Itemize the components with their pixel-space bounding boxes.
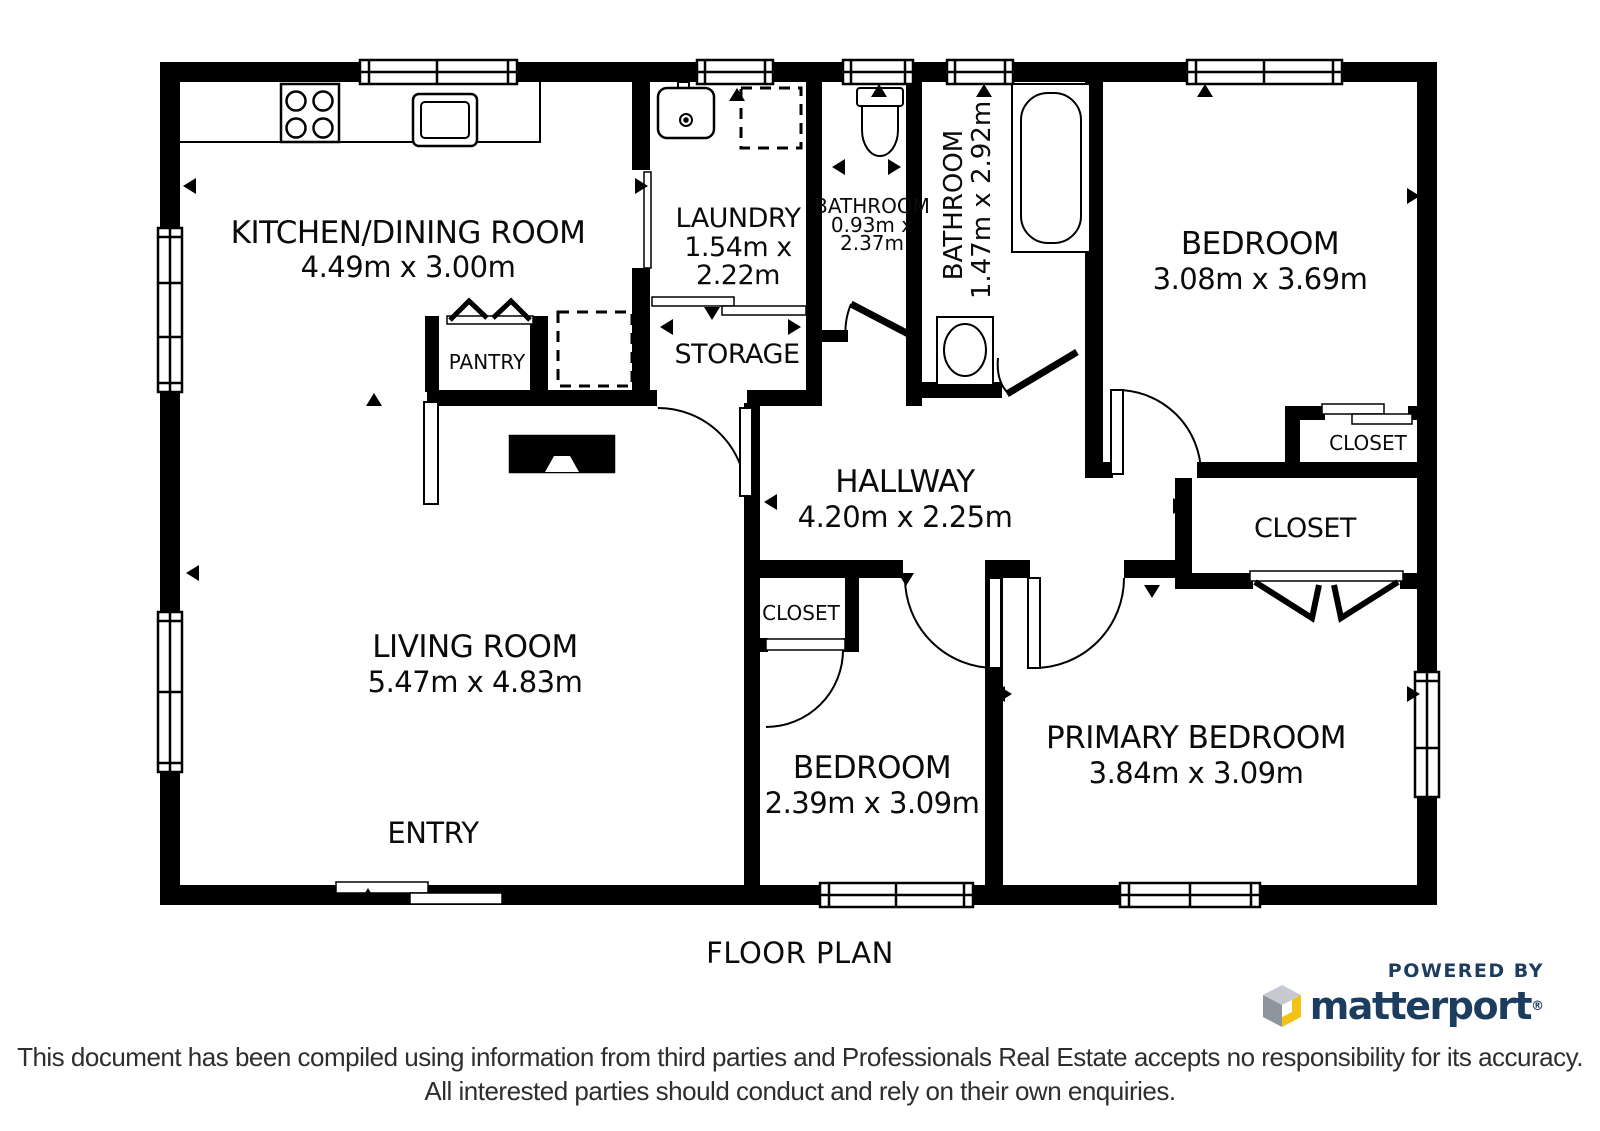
camera-marker-icon xyxy=(729,88,745,101)
camera-marker-icon xyxy=(976,84,992,97)
bedroom-top-dims: 3.08m x 3.69m xyxy=(1153,262,1368,296)
wall-pantry-right xyxy=(530,316,548,392)
matterport-wordmark: matterport xyxy=(1310,987,1531,1025)
bathroom-main-dims: 1.47m x 2.92m xyxy=(967,101,997,299)
wall-pantry-left xyxy=(425,316,439,392)
disclaimer-line1: This document has been compiled using in… xyxy=(0,1040,1600,1074)
wall-closet-left-small xyxy=(1285,420,1300,462)
primary-label: PRIMARY BEDROOM xyxy=(1046,720,1346,756)
registered-mark: ® xyxy=(1531,999,1544,1014)
matterport-cube-icon xyxy=(1262,984,1302,1028)
camera-marker-icon xyxy=(764,494,777,510)
stove-icon xyxy=(281,84,339,142)
camera-marker-icon xyxy=(1144,585,1160,598)
wall-hall-bottom-a xyxy=(744,560,903,578)
wall-bigcloset-bottom-a xyxy=(1175,573,1253,589)
kitchen-dims: 4.49m x 3.00m xyxy=(301,250,516,284)
camera-marker-icon xyxy=(898,573,914,586)
door-bathroom-main xyxy=(998,352,1077,394)
window-bath2-top xyxy=(947,60,1013,84)
disclaimer: This document has been compiled using in… xyxy=(0,1040,1600,1108)
door-bedroom-top xyxy=(1111,390,1201,474)
door-closet-mid xyxy=(766,639,845,727)
bedroom-mid-dims: 2.39m x 3.09m xyxy=(765,786,980,820)
window-living-left xyxy=(158,612,182,772)
laundry-dims2: 2.22m xyxy=(696,260,780,291)
window-kitchen-top xyxy=(360,60,517,84)
floor-plan-page: KITCHEN/DINING ROOM 4.49m x 3.00m LAUNDR… xyxy=(0,0,1600,1131)
window-kitchen-left xyxy=(158,228,182,392)
kitchen-counter xyxy=(180,82,540,142)
wall-closet-top-a xyxy=(1285,406,1325,420)
disclaimer-line2: All interested parties should conduct an… xyxy=(0,1074,1600,1108)
camera-marker-icon xyxy=(183,178,196,194)
kitchen-label: KITCHEN/DINING ROOM xyxy=(231,215,586,251)
bedroom-top-label: BEDROOM xyxy=(1181,226,1339,262)
pantry-label: PANTRY xyxy=(449,350,526,374)
closet-top-label: CLOSET xyxy=(1329,431,1407,455)
wall-kitchen-bottom xyxy=(427,390,657,406)
camera-marker-icon xyxy=(999,686,1012,702)
storage-label: STORAGE xyxy=(674,339,799,370)
wall-bath1-bath2 xyxy=(906,82,922,406)
appliance-space-laundry xyxy=(741,88,801,148)
appliance-space-kitchen xyxy=(558,312,632,386)
half-wall-living xyxy=(424,402,438,504)
laundry-label: LAUNDRY xyxy=(676,203,802,234)
wall-bath1-stub xyxy=(822,330,848,342)
bathroom-main-label: BATHROOM xyxy=(939,130,969,280)
wall-bigcloset-left xyxy=(1175,478,1192,573)
camera-marker-icon xyxy=(660,319,673,335)
primary-dims: 3.84m x 3.09m xyxy=(1089,756,1304,790)
wall-kitchen-laundry-upper xyxy=(632,82,650,170)
wall-bedroom-bottom-right xyxy=(1197,462,1417,478)
powered-by-label: POWERED BY xyxy=(1262,960,1544,982)
toilet-icon xyxy=(857,88,903,156)
closet-mid-label: CLOSET xyxy=(762,601,840,625)
window-primary-bottom xyxy=(1120,883,1260,907)
bypass-door-closet-top xyxy=(1322,404,1412,424)
wall-exterior-left xyxy=(160,62,180,905)
bathroom-sink-icon xyxy=(937,317,993,385)
camera-marker-icon xyxy=(1197,84,1213,97)
window-bath1-top xyxy=(843,60,913,84)
wall-kitchen-laundry-lower xyxy=(632,268,650,406)
matterport-branding: POWERED BY matterport ® xyxy=(1262,960,1544,1028)
living-label: LIVING ROOM xyxy=(372,629,577,665)
window-primary-right xyxy=(1415,672,1439,797)
camera-marker-icon xyxy=(366,393,382,406)
camera-marker-icon xyxy=(888,159,901,175)
sliding-door-storage xyxy=(652,297,806,315)
camera-marker-icon xyxy=(704,307,720,320)
bifold-door-bigcloset xyxy=(1250,571,1403,618)
laundry-sink-icon xyxy=(658,82,714,138)
wall-hall-bottom-b xyxy=(985,560,1030,578)
hallway-dims: 4.20m x 2.25m xyxy=(798,500,1013,534)
living-dims: 5.47m x 4.83m xyxy=(368,665,583,699)
fireplace-icon xyxy=(510,436,614,472)
window-bedroom-top xyxy=(1187,60,1342,84)
laundry-dims1: 1.54m x xyxy=(684,232,792,263)
door-bathroom-small xyxy=(845,304,916,341)
camera-marker-icon xyxy=(788,319,801,335)
hallway-label: HALLWAY xyxy=(835,464,975,500)
bathroom-small-dims2: 2.37m xyxy=(840,231,904,255)
door-primary xyxy=(1028,578,1124,668)
camera-marker-icon xyxy=(186,565,199,581)
door-storage-living xyxy=(658,408,752,496)
entry-label: ENTRY xyxy=(387,816,479,850)
bathtub-icon xyxy=(1012,84,1090,252)
window-laundry-top xyxy=(697,60,773,84)
bedroom-mid-label: BEDROOM xyxy=(793,750,951,786)
window-bedroom-mid-bottom xyxy=(820,883,973,907)
camera-marker-icon xyxy=(832,159,845,175)
wall-bedroom-bottom-left xyxy=(1085,462,1113,478)
closet-big-label: CLOSET xyxy=(1254,513,1357,544)
wall-laundry-bath1 xyxy=(806,82,822,406)
bifold-door-pantry xyxy=(447,301,533,324)
kitchen-sink-icon xyxy=(413,94,477,146)
